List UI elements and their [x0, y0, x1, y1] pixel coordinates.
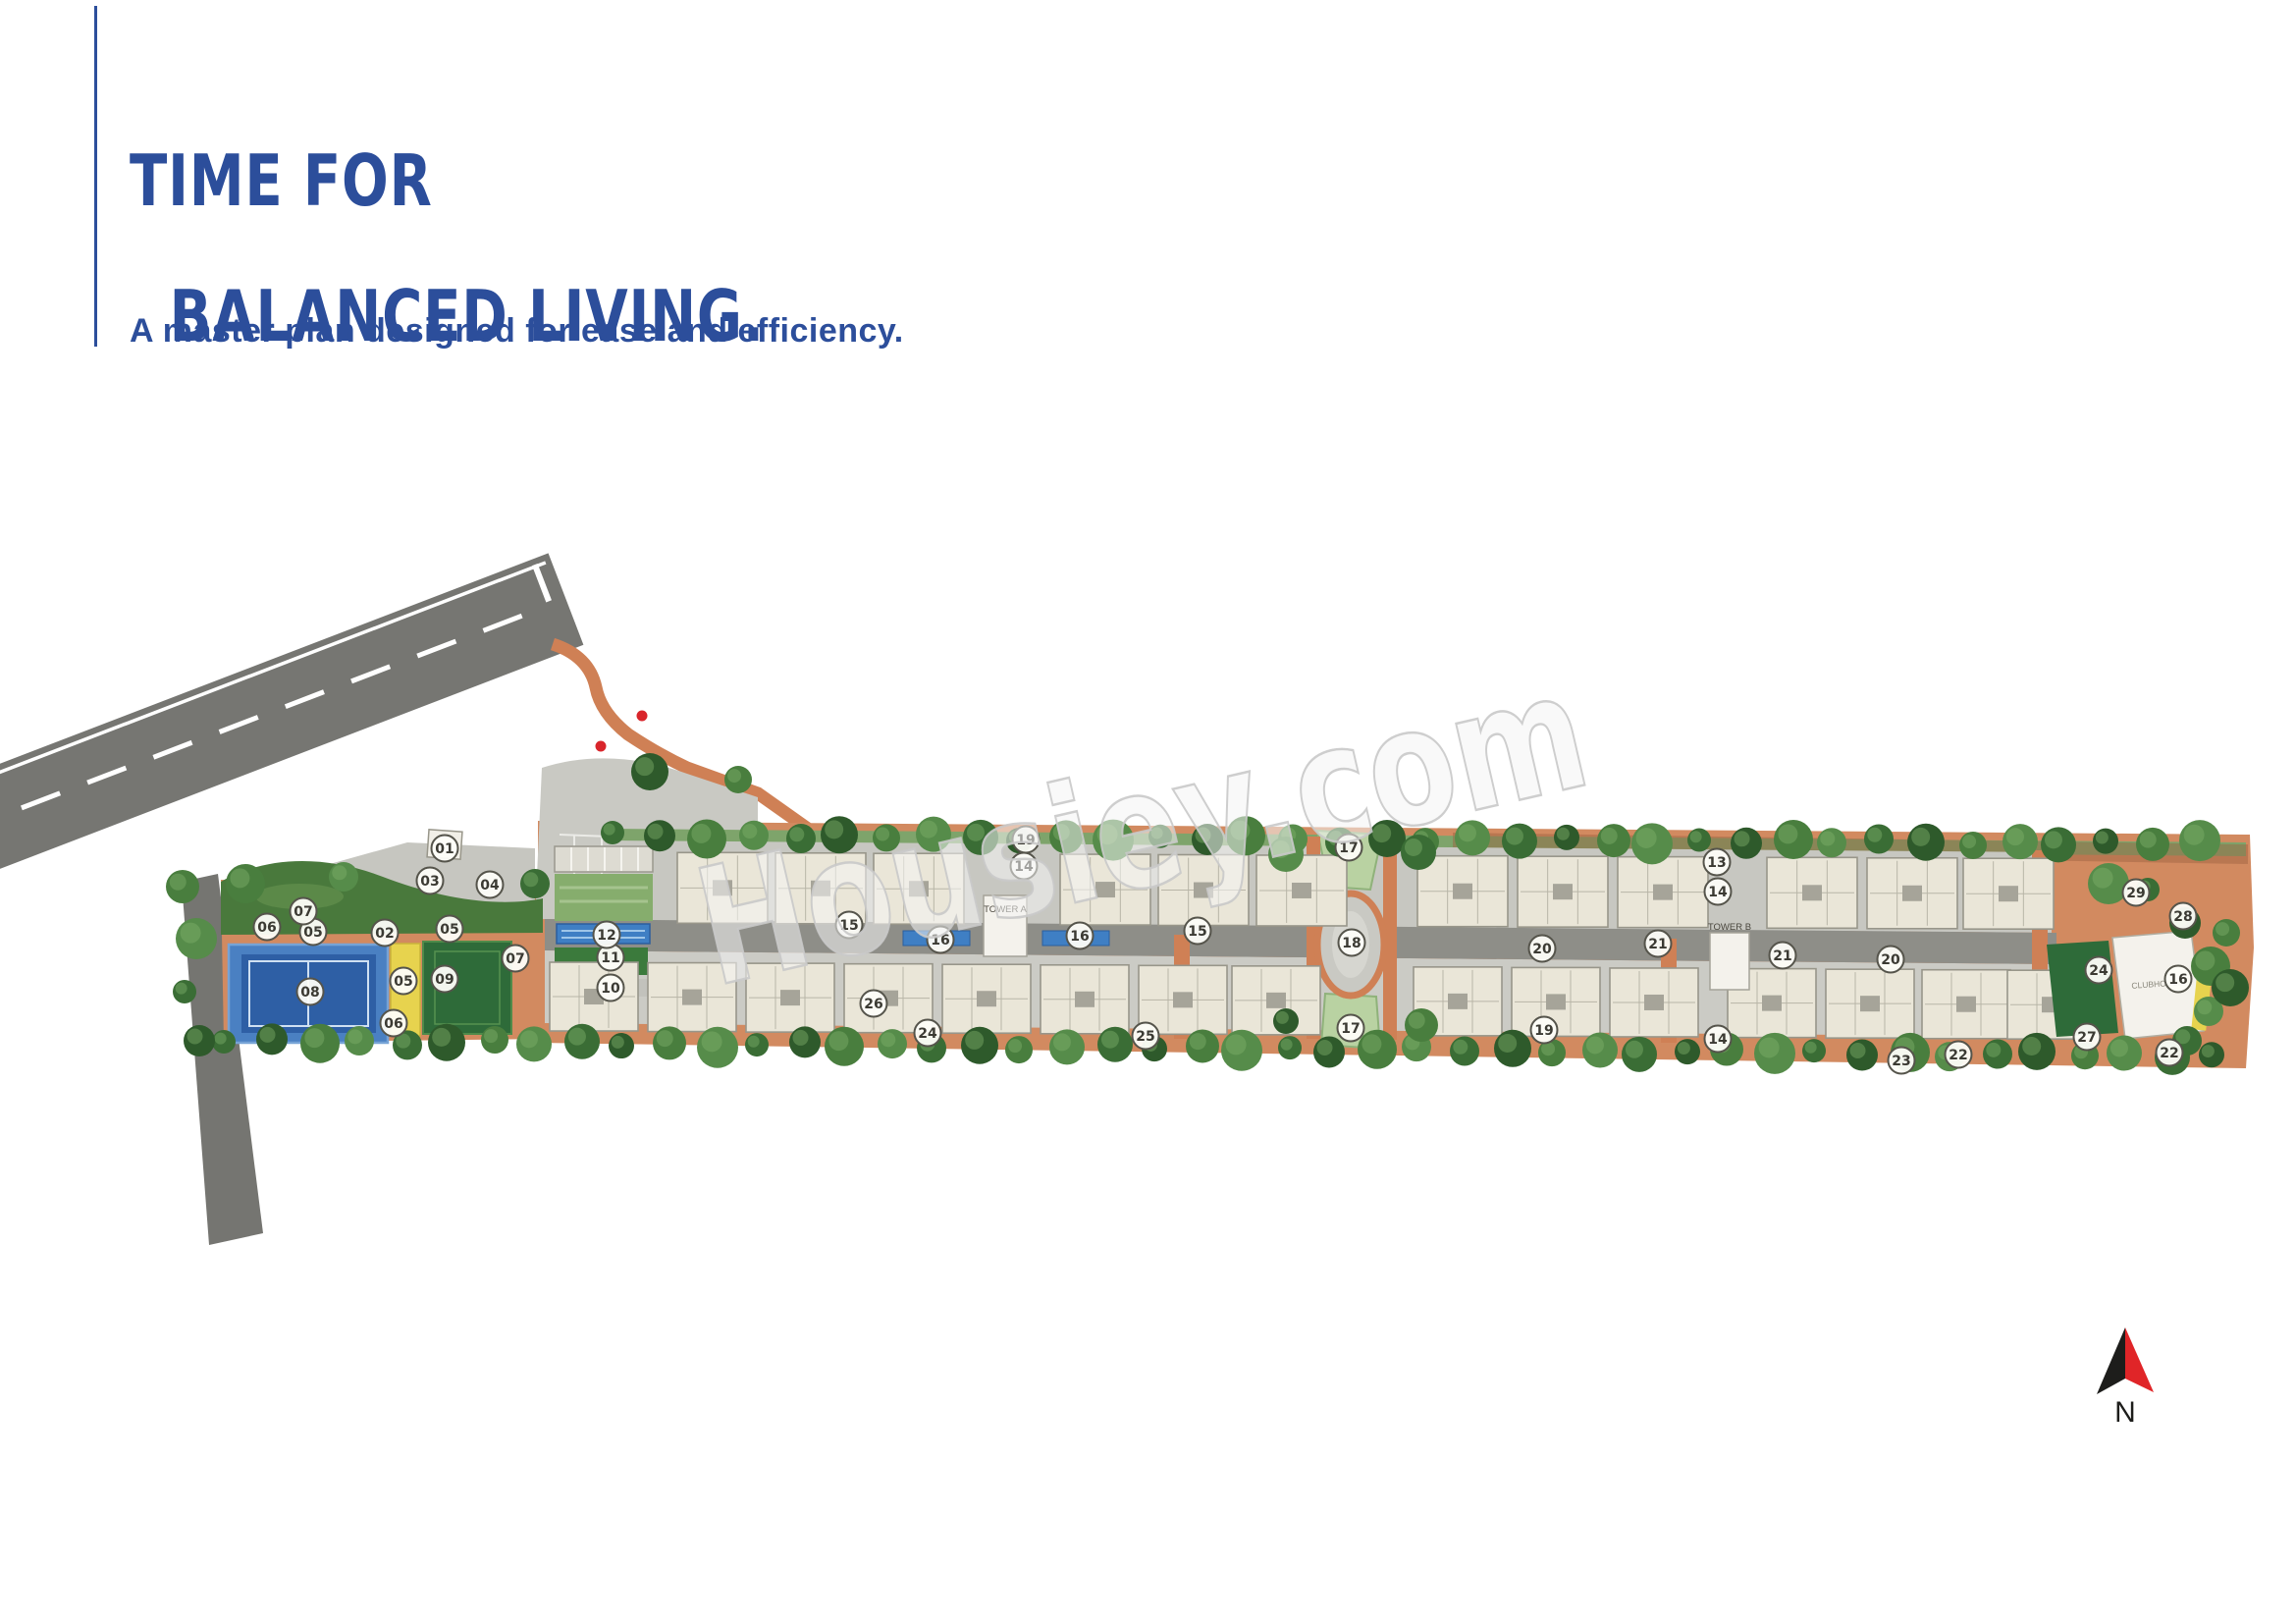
plan-marker: 22 [2157, 1040, 2183, 1066]
svg-text:14: 14 [1708, 1032, 1728, 1048]
svg-text:05: 05 [303, 925, 322, 941]
svg-text:24: 24 [918, 1026, 937, 1042]
tree [1675, 1039, 1700, 1064]
plan-marker: 14 [1705, 1026, 1732, 1053]
svg-text:06: 06 [257, 920, 276, 936]
plan-marker: 15 [1185, 918, 1211, 945]
svg-text:18: 18 [1342, 936, 1361, 951]
tower-b [1710, 933, 1749, 990]
tree [173, 980, 196, 1003]
plan-marker: 29 [2123, 880, 2150, 906]
svg-text:21: 21 [1648, 937, 1667, 952]
plan-marker: 24 [915, 1020, 941, 1047]
north-compass-icon: N [2097, 1327, 2154, 1429]
tree [520, 869, 550, 898]
svg-text:26: 26 [864, 997, 882, 1012]
tree [226, 864, 265, 903]
tree [2093, 829, 2118, 854]
svg-text:08: 08 [300, 985, 319, 1001]
building-block [1922, 970, 2010, 1039]
tree [1597, 824, 1630, 857]
svg-text:07: 07 [294, 904, 312, 920]
plan-marker: 06 [381, 1010, 407, 1037]
tree [1731, 828, 1762, 859]
svg-text:03: 03 [420, 874, 439, 890]
tree [2212, 969, 2249, 1006]
tree [1983, 1040, 2012, 1069]
tree [724, 766, 752, 793]
tree [256, 1023, 288, 1055]
tree [825, 1027, 864, 1066]
tree [1221, 1030, 1262, 1071]
master-plan: TOWER A TOWER B CLUBHOUSE 01020304050505… [0, 0, 2296, 1624]
tree [2136, 828, 2169, 861]
tree [1313, 1036, 1345, 1067]
tree [1622, 1037, 1657, 1072]
svg-text:06: 06 [384, 1016, 402, 1032]
building-block [1041, 965, 1129, 1034]
svg-text:25: 25 [1136, 1029, 1154, 1045]
entry-flag-icon [596, 741, 607, 752]
plan-marker: 14 [1705, 879, 1732, 905]
svg-text:04: 04 [480, 878, 500, 893]
plan-marker: 01 [432, 836, 458, 862]
plan-marker: 06 [254, 914, 281, 941]
svg-text:20: 20 [1881, 952, 1900, 968]
tree [516, 1026, 552, 1061]
tree [1358, 1030, 1397, 1069]
svg-text:21: 21 [1773, 948, 1791, 964]
building-block [1610, 968, 1698, 1037]
entry-flag-icon [637, 711, 648, 722]
tree [481, 1026, 508, 1054]
plan-marker: 07 [503, 946, 529, 972]
plan-marker: 25 [1133, 1023, 1159, 1050]
tree [2199, 1042, 2224, 1067]
plan-marker: 20 [1529, 936, 1556, 962]
compass-label: N [2114, 1396, 2136, 1429]
svg-text:10: 10 [601, 981, 620, 997]
tree [745, 1033, 769, 1056]
tree [329, 862, 358, 892]
svg-text:19: 19 [1534, 1023, 1553, 1039]
plan-marker: 26 [861, 991, 887, 1017]
svg-text:17: 17 [1341, 1021, 1360, 1037]
svg-text:20: 20 [1532, 942, 1552, 957]
lawn-field [555, 874, 653, 921]
tree [212, 1030, 236, 1054]
tree [345, 1026, 374, 1056]
tree [1687, 829, 1711, 852]
tree [1278, 1036, 1302, 1059]
building-block [1963, 858, 2054, 929]
tree [653, 1026, 686, 1059]
svg-text:22: 22 [1949, 1048, 1967, 1063]
tree [1754, 1033, 1795, 1074]
plan-marker: 10 [598, 975, 624, 1001]
tree [1907, 824, 1945, 861]
tree [789, 1026, 821, 1057]
tree [1864, 824, 1894, 853]
plan-marker: 07 [291, 898, 317, 925]
compass-right-wing [2125, 1327, 2154, 1392]
tree [1802, 1039, 1826, 1062]
tree [564, 1024, 600, 1059]
plan-marker: 02 [372, 920, 399, 947]
tree [1959, 832, 1987, 859]
tree [1097, 1027, 1133, 1062]
tree [166, 870, 199, 903]
tree [878, 1029, 907, 1058]
tree [428, 1024, 465, 1061]
plan-marker: 22 [1946, 1042, 1972, 1068]
svg-text:24: 24 [2089, 963, 2109, 979]
svg-text:05: 05 [394, 974, 412, 990]
plan-marker: 08 [297, 979, 324, 1005]
svg-text:15: 15 [1188, 924, 1206, 940]
tree [1774, 820, 1813, 859]
plan-marker: 04 [477, 872, 504, 898]
plan-marker: 23 [1889, 1048, 1915, 1074]
plan-marker: 24 [2086, 957, 2112, 984]
tree [1049, 1029, 1085, 1064]
tree [609, 1033, 634, 1058]
plan-marker: 20 [1878, 947, 1904, 973]
tree [2041, 827, 2076, 862]
plan-marker: 13 [1704, 849, 1731, 876]
tree [2179, 820, 2220, 861]
tree [176, 918, 217, 959]
svg-text:16: 16 [2168, 972, 2187, 988]
svg-text:01: 01 [435, 841, 454, 857]
plan-marker: 16 [2165, 966, 2192, 993]
building-block [1867, 858, 1957, 929]
tree [631, 753, 668, 790]
tree [300, 1024, 340, 1063]
building-block [1417, 856, 1508, 927]
svg-text:12: 12 [597, 928, 615, 944]
plan-marker: 05 [437, 916, 463, 943]
plan-marker: 12 [594, 922, 620, 948]
svg-text:11: 11 [601, 950, 619, 966]
tree [1582, 1032, 1618, 1067]
tree [1494, 1030, 1531, 1067]
svg-text:22: 22 [2160, 1046, 2178, 1061]
plan-marker: 28 [2170, 903, 2197, 930]
tree [1273, 1008, 1299, 1034]
plan-marker: 27 [2074, 1024, 2101, 1051]
svg-text:23: 23 [1892, 1054, 1910, 1069]
svg-text:28: 28 [2173, 909, 2192, 925]
tree [1405, 1008, 1438, 1042]
svg-text:07: 07 [506, 951, 524, 967]
plan-marker: 19 [1531, 1017, 1558, 1044]
tree [2002, 824, 2038, 859]
plan-marker: 17 [1338, 1015, 1364, 1042]
tree [697, 1027, 738, 1068]
plan-marker: 09 [432, 966, 458, 993]
plan-marker: 18 [1339, 930, 1365, 956]
tree [1846, 1040, 1878, 1071]
clubhouse-lawn [2047, 941, 2118, 1037]
building-block [1826, 969, 1914, 1038]
tree [644, 820, 675, 851]
building-block [942, 964, 1031, 1033]
tree [961, 1027, 998, 1064]
tree [2107, 1036, 2142, 1071]
tree [2018, 1033, 2056, 1070]
tree [1450, 1036, 1479, 1065]
tree [2213, 919, 2240, 947]
tree [184, 1025, 215, 1056]
tower-b-label: TOWER B [1708, 922, 1751, 933]
svg-text:29: 29 [2126, 886, 2145, 901]
building-block [1767, 857, 1857, 928]
svg-text:09: 09 [435, 972, 454, 988]
building-block [1618, 857, 1708, 928]
svg-text:02: 02 [375, 926, 394, 942]
compass-left-wing [2097, 1327, 2125, 1394]
plan-marker: 05 [391, 968, 417, 995]
tree [1817, 828, 1846, 857]
svg-text:27: 27 [2077, 1030, 2096, 1046]
tree [1631, 823, 1673, 864]
tree [601, 821, 624, 844]
plan-marker: 03 [417, 868, 444, 894]
plan-marker: 21 [1770, 943, 1796, 969]
tree [1005, 1036, 1033, 1063]
svg-text:05: 05 [440, 922, 458, 938]
building-block [1518, 856, 1608, 927]
plan-marker: 21 [1645, 931, 1672, 957]
tree [1186, 1029, 1219, 1062]
svg-text:14: 14 [1708, 885, 1728, 900]
building-block [550, 962, 638, 1031]
svg-text:13: 13 [1707, 855, 1726, 871]
